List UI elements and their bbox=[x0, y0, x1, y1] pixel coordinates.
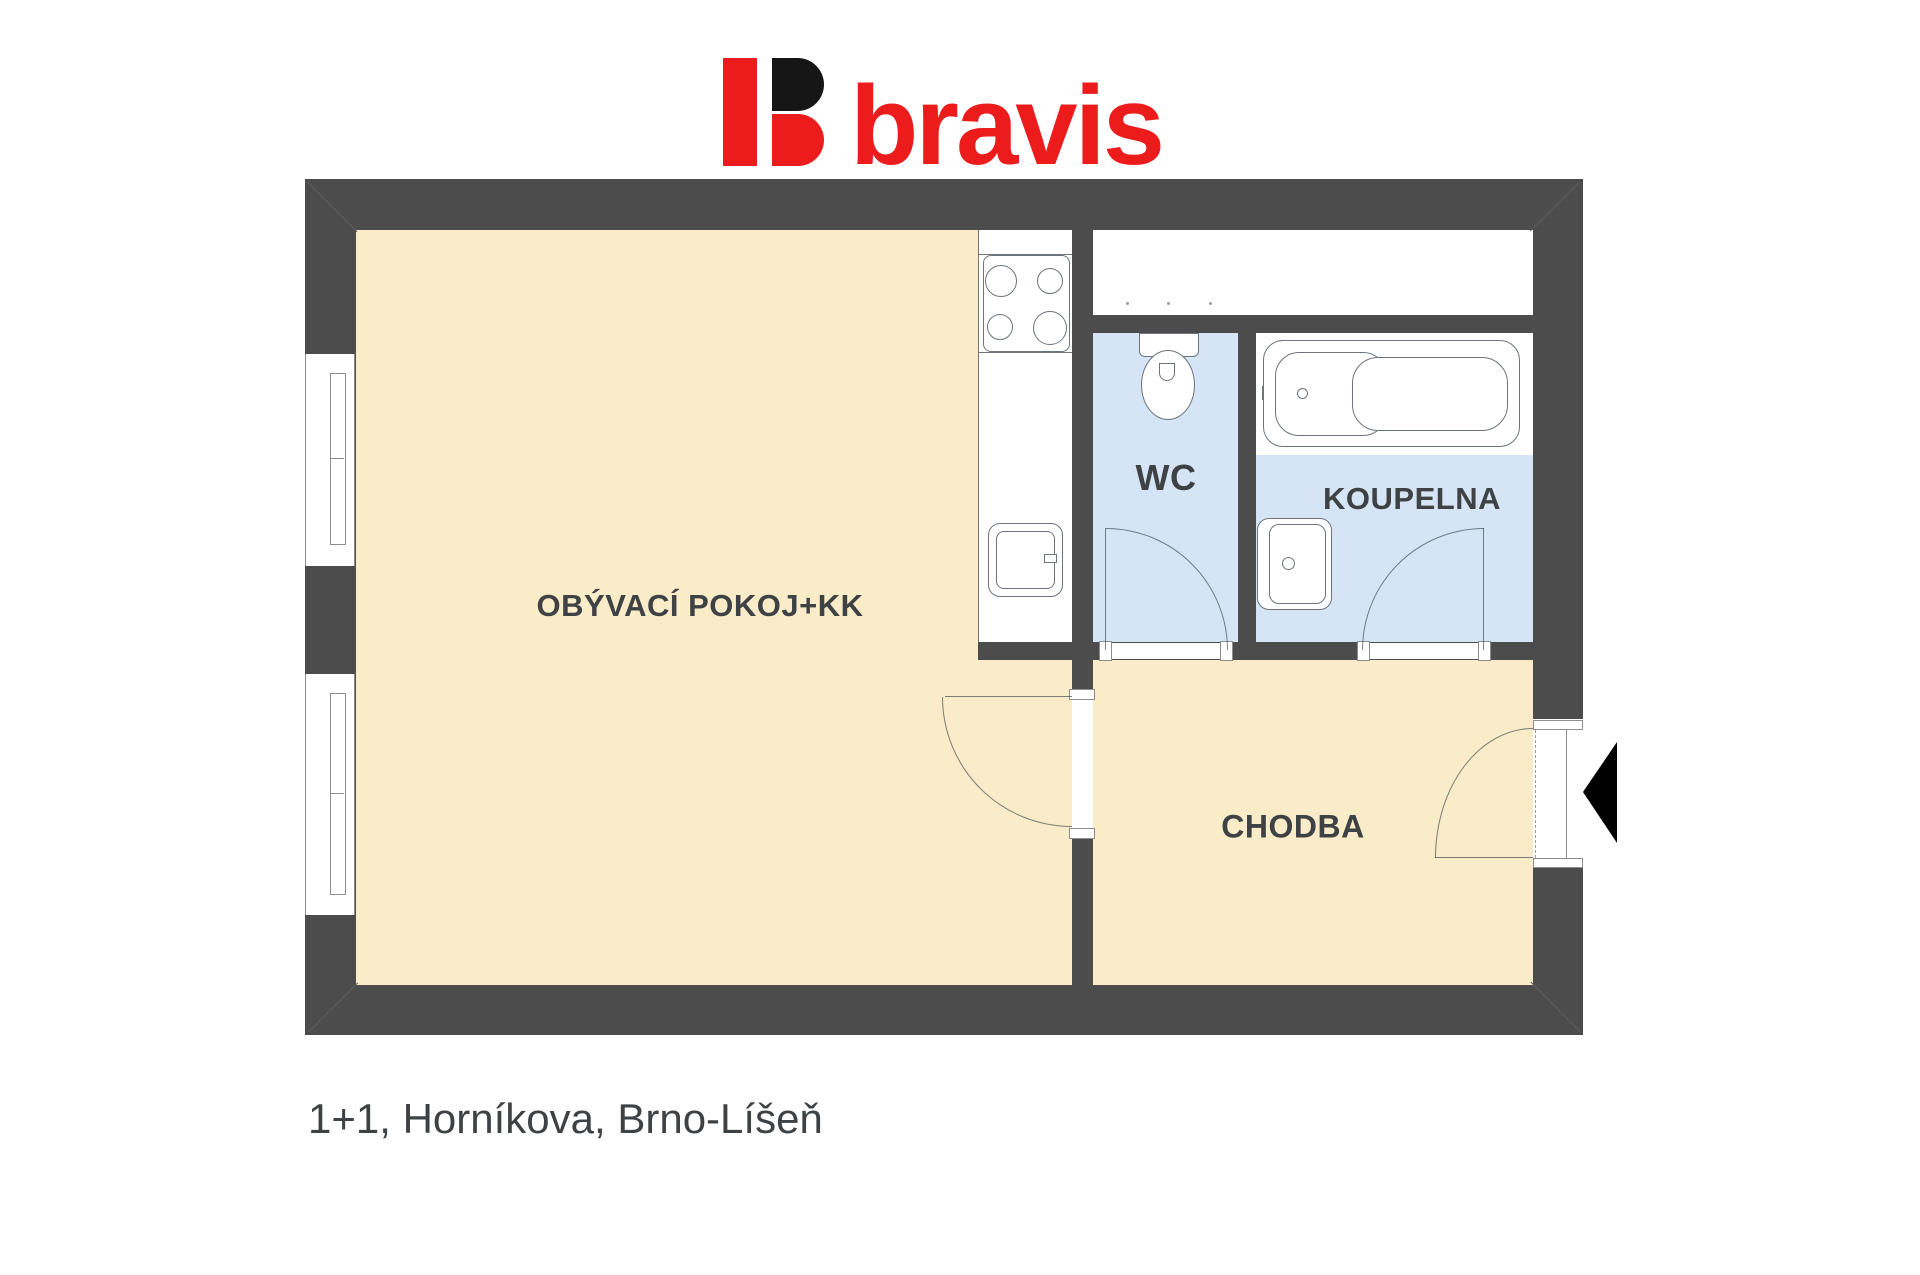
burner-icon bbox=[1033, 311, 1067, 345]
entrance-arrow-icon bbox=[1583, 742, 1617, 843]
door-jamb bbox=[1069, 828, 1095, 839]
burner-icon bbox=[1037, 268, 1063, 294]
listing-caption: 1+1, Horníkova, Brno-Líšeň bbox=[308, 1095, 823, 1143]
kitchen-faucet-icon bbox=[1044, 554, 1057, 563]
toilet-flush-icon bbox=[1159, 363, 1175, 381]
bathtub-faucet-icon bbox=[1262, 386, 1264, 400]
niche-dot bbox=[1126, 302, 1129, 305]
wall-niche-bottom bbox=[1093, 315, 1533, 333]
burner-icon bbox=[987, 314, 1013, 340]
washbasin-faucet-icon bbox=[1282, 557, 1295, 570]
entrance-threshold-line bbox=[1535, 730, 1536, 858]
logo-b-top-icon bbox=[772, 58, 824, 111]
burner-icon bbox=[985, 265, 1017, 297]
window-1-mullion bbox=[331, 458, 344, 459]
bathtub-drain-icon bbox=[1297, 388, 1308, 399]
washbasin-basin bbox=[1269, 524, 1326, 604]
wall-wc-bath bbox=[1238, 333, 1256, 643]
wall-right bbox=[1533, 179, 1583, 1035]
bathroom-label: KOUPELNA bbox=[1323, 481, 1501, 517]
wall-top bbox=[305, 179, 1583, 230]
logo-b-bottom-icon bbox=[772, 114, 824, 166]
living-door-opening bbox=[1072, 690, 1093, 838]
window-1-frame bbox=[330, 373, 346, 545]
brand-name: bravis bbox=[850, 70, 1162, 182]
living-room-label: OBÝVACÍ POKOJ+KK bbox=[537, 588, 864, 624]
counter-divider bbox=[978, 352, 1072, 353]
entrance-door-opening bbox=[1533, 719, 1583, 868]
window-2-frame bbox=[330, 693, 346, 895]
hallway-label: CHODBA bbox=[1221, 809, 1364, 846]
entrance-door-frame-line bbox=[1566, 730, 1567, 858]
door-jamb bbox=[1533, 858, 1583, 868]
floorplan-page: bravis bbox=[0, 0, 1920, 1275]
niche-dot bbox=[1209, 302, 1212, 305]
wall-living-hall bbox=[1072, 230, 1093, 985]
wall-bottom bbox=[305, 985, 1583, 1035]
wc-label: WC bbox=[1136, 457, 1197, 499]
toilet-bowl-icon bbox=[1141, 350, 1195, 420]
door-jamb bbox=[1533, 720, 1583, 730]
niche-area bbox=[1093, 230, 1533, 315]
logo-bar-icon bbox=[723, 58, 757, 166]
door-jamb bbox=[1069, 689, 1095, 700]
bathtub-body-section bbox=[1352, 357, 1508, 431]
window-2-mullion bbox=[331, 793, 344, 794]
niche-dot bbox=[1167, 302, 1170, 305]
